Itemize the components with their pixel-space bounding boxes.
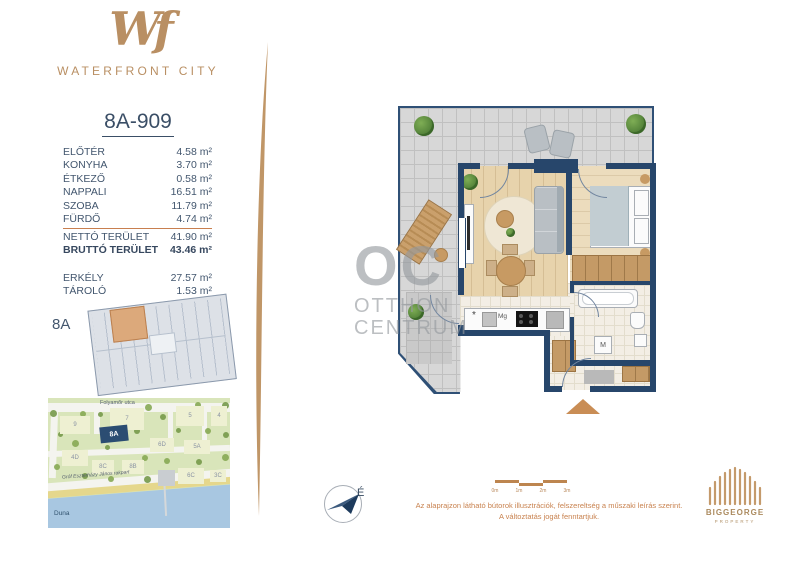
plant-small (506, 228, 515, 237)
unit-title: 8A-909 (40, 110, 236, 137)
dining-table (496, 256, 526, 286)
map-building-6D: 6D (150, 438, 174, 452)
coffee-table (496, 210, 514, 228)
biggeorge-logo-icon (705, 466, 765, 506)
area-label: NETTÓ TERÜLET (63, 231, 149, 244)
developer-name: BIGGEORGE (700, 508, 770, 517)
map-buildings: 97548A6D5A4D8C8B6C3C (48, 398, 230, 528)
wall (650, 163, 656, 392)
dishwasher-label: Mg (498, 313, 507, 320)
extra-area-table: ERKÉLY27.57 m²TÁROLÓ1.53 m² (63, 272, 212, 299)
north-label: É (357, 487, 364, 499)
room-row: ELŐTÉR4.58 m² (63, 146, 212, 159)
wall (458, 330, 546, 336)
area-value: 16.51 m² (171, 186, 212, 199)
area-divider-line (63, 228, 212, 229)
gold-curve-ornament (248, 40, 278, 518)
map-river-label: Duna (54, 510, 70, 517)
wall (508, 163, 536, 169)
wardrobe (572, 255, 652, 283)
map-building-5: 5 (176, 406, 204, 426)
scale-segment (543, 480, 567, 483)
kitchen-appliance (546, 311, 564, 329)
area-value: 0.58 m² (176, 173, 212, 186)
plant (626, 114, 646, 134)
watermark-line1: OTTHON (354, 296, 468, 316)
pillow (634, 190, 649, 216)
room-row: FÜRDŐ4.74 m² (63, 213, 212, 226)
dining-chair (502, 244, 518, 255)
wall (606, 163, 656, 169)
area-value: 43.46 m² (170, 244, 212, 257)
area-label: FÜRDŐ (63, 213, 100, 226)
otthon-centrum-watermark: OC OTTHON CENTRUM (354, 238, 468, 338)
wall (544, 330, 550, 392)
room-row: KONYHA3.70 m² (63, 159, 212, 172)
map-building-8A: 8A (99, 425, 129, 444)
plant (414, 116, 434, 136)
total-row: NETTÓ TERÜLET41.90 m² (63, 231, 212, 244)
area-label: ERKÉLY (63, 272, 104, 285)
wall (544, 386, 562, 392)
toilet (630, 312, 645, 329)
map-building-5A: 5A (184, 440, 210, 454)
scale-segment (495, 480, 519, 483)
building-overview-label: 8A (52, 316, 70, 333)
scale-bar: 0m1m2m3m (495, 480, 567, 494)
fridge-symbol: * (467, 310, 481, 321)
area-value: 4.58 m² (176, 146, 212, 159)
entry-wood-shelf (622, 366, 650, 382)
map-building-4D: 4D (62, 450, 88, 466)
sofa-backrest (557, 186, 563, 252)
area-value: 41.90 m² (171, 231, 212, 244)
watermark-monogram: OC (354, 238, 468, 294)
area-label: SZOBA (63, 200, 99, 213)
map-building-9: 9 (60, 416, 90, 434)
map-building-6C: 6C (178, 468, 204, 484)
scale-tick: 2m (540, 488, 547, 494)
unit-id: 8A-909 (102, 110, 174, 137)
building-core (149, 332, 177, 355)
wall (590, 386, 656, 392)
disclaimer-line2: A változtatás jogát fenntartjuk. (399, 512, 699, 523)
total-row: BRUTTÓ TERÜLET43.46 m² (63, 244, 212, 257)
area-value: 27.57 m² (171, 272, 212, 285)
area-value: 11.79 m² (171, 200, 212, 213)
area-label: KONYHA (63, 159, 107, 172)
disclaimer-line1: Az alaprajzon látható bútorok illusztrác… (399, 501, 699, 512)
kitchen-sink (482, 312, 497, 327)
area-value: 4.74 m² (176, 213, 212, 226)
room-row: NAPPALI16.51 m² (63, 186, 212, 199)
room-area-table: ELŐTÉR4.58 m²KONYHA3.70 m²ÉTKEZŐ0.58 m²N… (63, 146, 212, 226)
room-row: SZOBA11.79 m² (63, 200, 212, 213)
scale-segment (519, 483, 543, 486)
wall (566, 169, 572, 255)
brand-name: WATERFRONT CITY (40, 64, 236, 78)
cooktop (516, 311, 538, 327)
dining-chair (502, 286, 518, 297)
washing-machine-label: M (600, 342, 606, 349)
area-label: BRUTTÓ TERÜLET (63, 244, 158, 257)
disclaimer: Az alaprajzon látható bútorok illusztrác… (399, 501, 699, 522)
area-label: NAPPALI (63, 186, 107, 199)
extra-row: ERKÉLY27.57 m² (63, 272, 212, 285)
developer-division: PROPERTY (700, 519, 770, 524)
area-label: TÁROLÓ (63, 285, 106, 298)
sink (634, 334, 647, 347)
nightstand (640, 174, 650, 184)
scale-tick: 3m (564, 488, 571, 494)
wall (570, 317, 574, 360)
scale-tick: 0m (492, 488, 499, 494)
wall (570, 281, 650, 285)
brand-monogram-logo: Wf (96, 2, 180, 56)
total-area-table: NETTÓ TERÜLET41.90 m²BRUTTÓ TERÜLET43.46… (63, 231, 212, 258)
scale-tick: 1m (516, 488, 523, 494)
washing-machine: M (594, 336, 612, 354)
pillow (634, 218, 649, 244)
room-row: ÉTKEZŐ0.58 m² (63, 173, 212, 186)
entrance-marker-triangle (566, 399, 600, 414)
highlighted-unit (109, 306, 148, 343)
extra-row: TÁROLÓ1.53 m² (63, 285, 212, 298)
map-street-top-label: Folyamőr utca (100, 400, 135, 406)
area-value: 3.70 m² (176, 159, 212, 172)
area-label: ÉTKEZŐ (63, 173, 105, 186)
plant (462, 174, 478, 190)
map-building-3C: 3C (210, 470, 226, 482)
area-label: ELŐTÉR (63, 146, 105, 159)
map-building-4: 4 (211, 406, 227, 426)
floorplan-brochure-page: { "brand": {"monogram": "Wf", "name": "W… (0, 0, 800, 565)
site-map: 97548A6D5A4D8C8B6C3C Folyamőr utca Gróf … (48, 398, 230, 528)
watermark-line2: CENTRUM (354, 318, 468, 338)
wall (458, 169, 464, 218)
building-overview-schematic (87, 294, 234, 394)
